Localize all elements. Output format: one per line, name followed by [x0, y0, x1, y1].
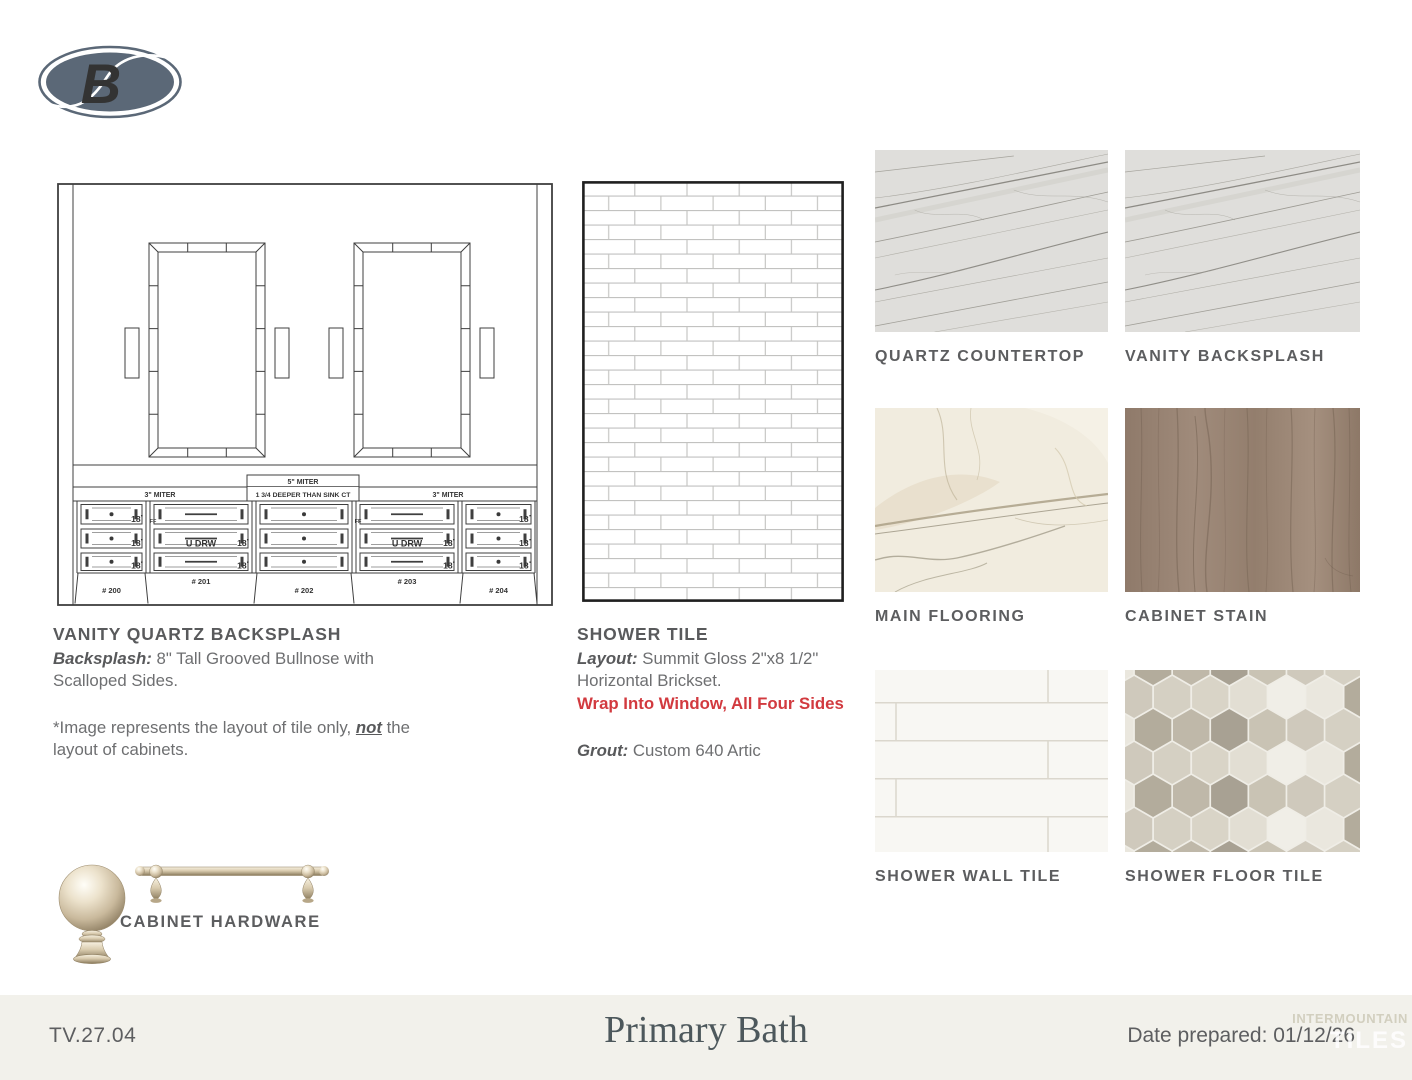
brand-logo: B — [37, 44, 183, 120]
note-emphasis: not — [356, 718, 382, 737]
vanity-text-block: VANITY QUARTZ BACKSPLASH Backsplash: 8" … — [53, 624, 448, 761]
swatch-label: CABINET STAIN — [1125, 608, 1360, 626]
tile-frame-left — [149, 243, 265, 457]
miter-label-center-top: 5" MITER — [288, 479, 319, 486]
cabinet-number: # 201 — [192, 577, 211, 586]
backsplash-label: Backsplash: — [53, 649, 152, 668]
swatch-shower-floor-tile: SHOWER FLOOR TILE — [1125, 670, 1360, 886]
sconce-icon — [125, 328, 139, 378]
swatch-main-flooring: MAIN FLOORING — [875, 408, 1108, 626]
swatch-cabinet-stain: CABINET STAIN — [1125, 408, 1360, 626]
sconce-icon — [275, 328, 289, 378]
miter-label-left: 3" MITER — [145, 492, 176, 499]
vanity-note: *Image represents the layout of tile onl… — [53, 717, 448, 761]
u-drawer-label: U DRW — [186, 539, 217, 549]
tile-frame-right — [354, 243, 470, 457]
cabinet-number: # 200 — [102, 586, 121, 595]
shower-layout-line: Layout: Summit Gloss 2"x8 1/2" Horizonta… — [577, 648, 849, 692]
cabinet-number: # 203 — [398, 577, 417, 586]
shower-section-heading: SHOWER TILE — [577, 624, 849, 645]
cabinet-knob-image — [55, 858, 129, 966]
swatch-label: VANITY BACKSPLASH — [1125, 348, 1360, 366]
vanity-spec-line: Backsplash: 8" Tall Grooved Bullnose wit… — [53, 648, 448, 692]
svg-text:18": 18" — [519, 538, 531, 548]
filler-label: FF — [150, 519, 157, 525]
cabinet-number: # 204 — [489, 586, 509, 595]
spec-sheet-page: B — [0, 0, 1412, 1080]
grout-label: Grout: — [577, 741, 628, 760]
swatch-label: QUARTZ COUNTERTOP — [875, 348, 1108, 366]
vanity-elevation-drawing: 3" MITER 5" MITER 1 3/4 DEEPER THAN SINK… — [57, 183, 553, 607]
svg-text:18": 18" — [519, 561, 531, 571]
shower-text-block: SHOWER TILE Layout: Summit Gloss 2"x8 1/… — [577, 624, 849, 762]
sconce-icon — [329, 328, 343, 378]
swatch-label: SHOWER FLOOR TILE — [1125, 868, 1360, 886]
cabinet-pull-image — [126, 852, 338, 910]
logo-letter: B — [81, 52, 121, 115]
svg-text:18": 18" — [519, 514, 531, 524]
shower-tile-layout-drawing — [582, 181, 844, 602]
swatch-vanity-backsplash: VANITY BACKSPLASH — [1125, 150, 1360, 366]
layout-label: Layout: — [577, 649, 638, 668]
shower-grout-line: Grout: Custom 640 Artic — [577, 740, 849, 762]
vanity-section-heading: VANITY QUARTZ BACKSPLASH — [53, 624, 448, 645]
cabinet-number: # 202 — [295, 586, 314, 595]
swatch-label: SHOWER WALL TILE — [875, 868, 1108, 886]
footer-bar: TV.27.04 Primary Bath Date prepared: 01/… — [0, 995, 1412, 1080]
miter-label-center-bottom: 1 3/4 DEEPER THAN SINK CT — [256, 492, 352, 499]
date-prepared: Date prepared: 01/12/26 — [1127, 1024, 1355, 1048]
shower-warning: Wrap Into Window, All Four Sides — [577, 693, 849, 715]
filler-label: FF — [355, 519, 362, 525]
u-drawer-label: U DRW — [392, 539, 423, 549]
hardware-label: CABINET HARDWARE — [120, 913, 321, 932]
miter-label-right: 3" MITER — [433, 492, 464, 499]
swatch-quartz-countertop: QUARTZ COUNTERTOP — [875, 150, 1108, 366]
sconce-icon — [480, 328, 494, 378]
swatch-label: MAIN FLOORING — [875, 608, 1108, 626]
swatch-shower-wall-tile: SHOWER WALL TILE — [875, 670, 1108, 886]
